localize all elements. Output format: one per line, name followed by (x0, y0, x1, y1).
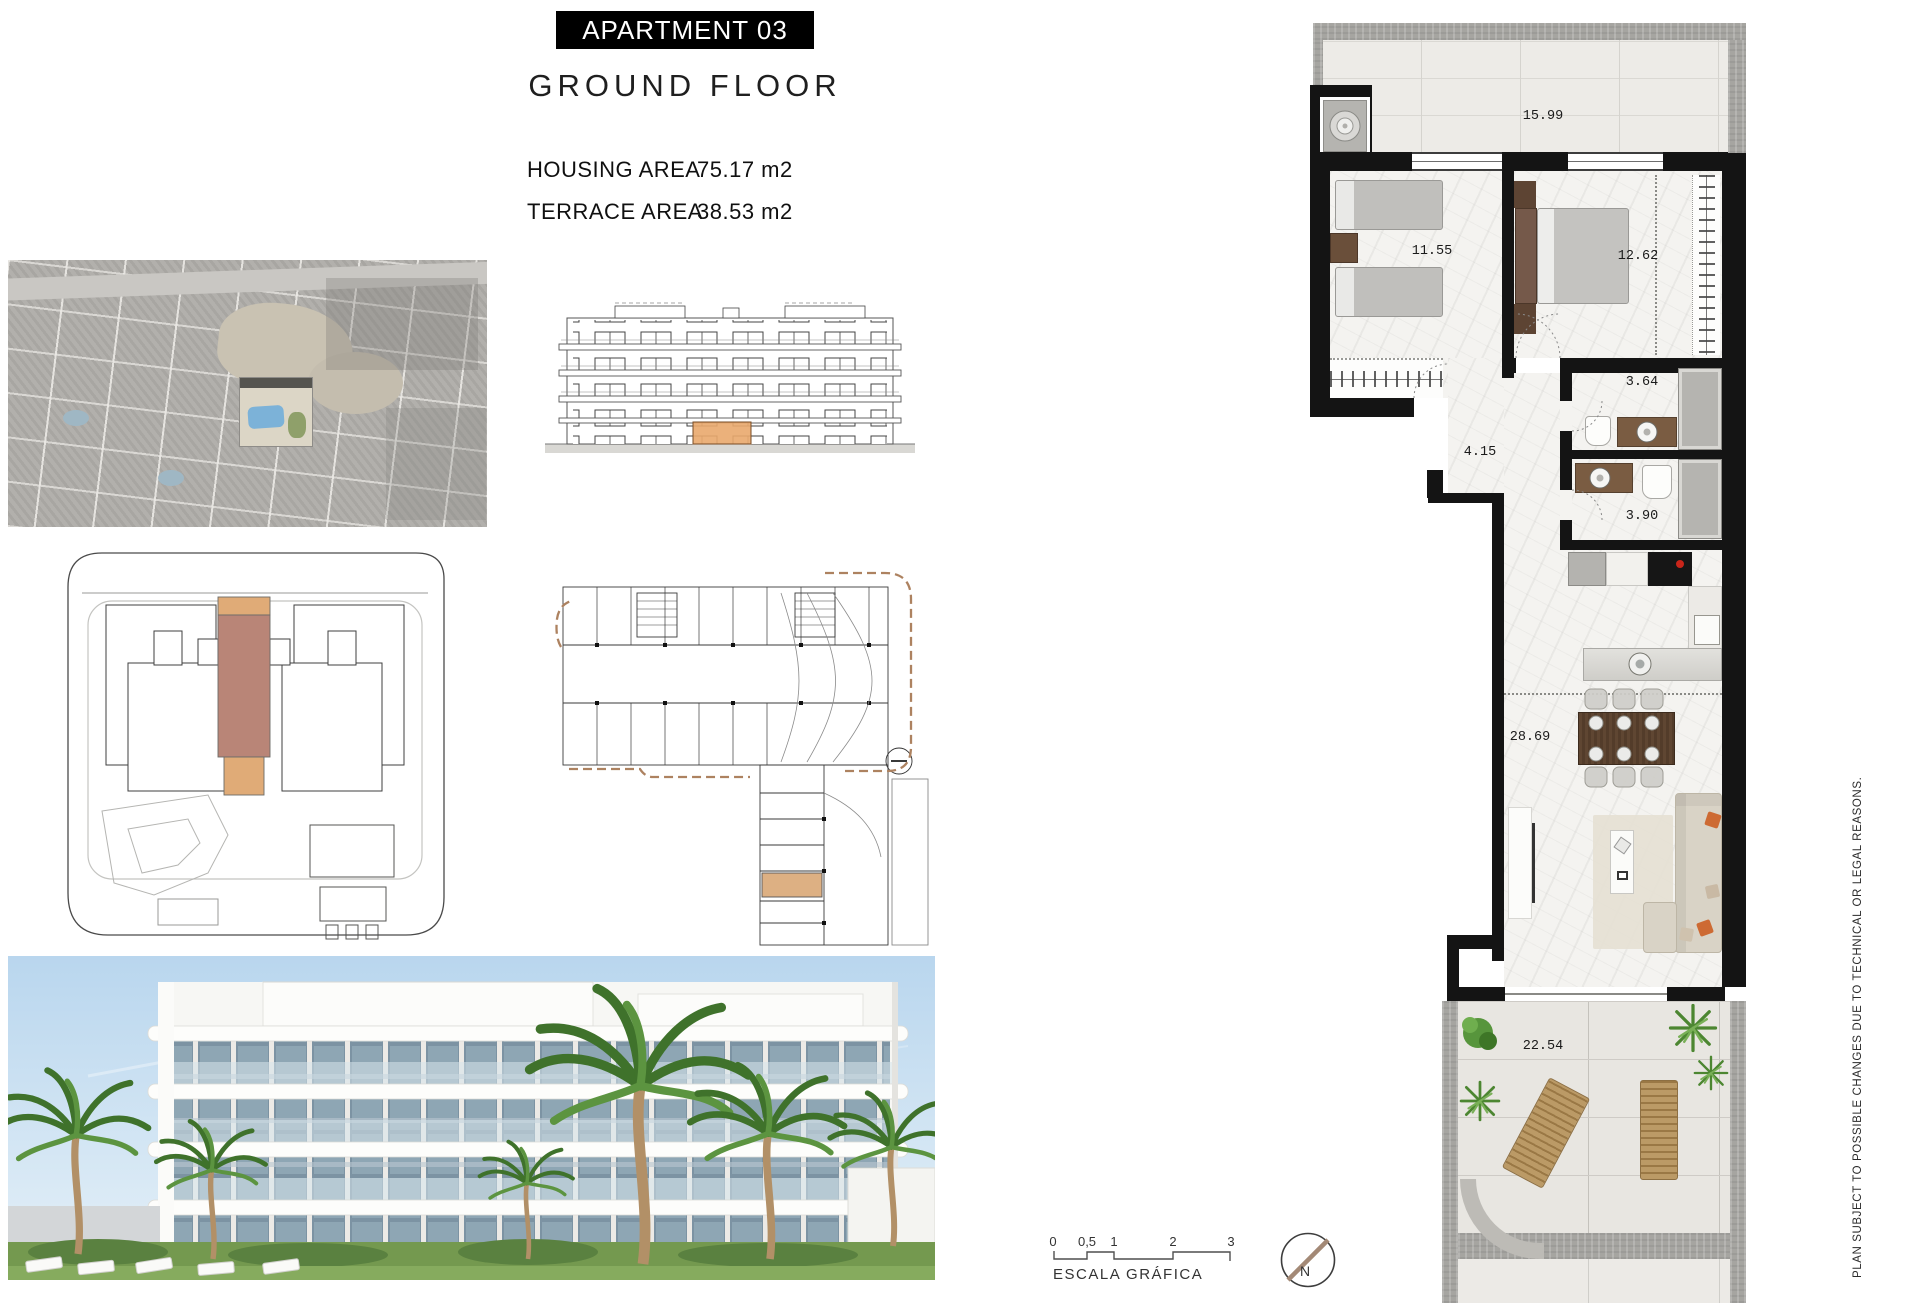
site-plan-drawing (58, 543, 452, 945)
aerial-block-shade (386, 408, 486, 520)
terrace-area-value: 38.53 m2 (697, 199, 793, 225)
housing-area-value: 75.17 m2 (697, 157, 793, 183)
aerial-photo (8, 260, 487, 527)
terrace-area-label: TERRACE AREA (527, 199, 703, 225)
floor-subtitle: GROUND FLOOR (460, 68, 910, 104)
aerial-block-shade (326, 278, 478, 370)
aerial-site-garden (288, 412, 306, 438)
aerial-site-roof (240, 378, 312, 388)
building-render-photo (8, 956, 935, 1280)
highlighted-unit (693, 422, 751, 444)
highlighted-parking-space (762, 873, 822, 897)
room-area-label-bedroom-2: 12.62 (1606, 249, 1670, 264)
room-area-label-hallway: 4.15 (1448, 445, 1512, 460)
legal-disclaimer: PLAN SUBJECT TO POSSIBLE CHANGES DUE TO … (1848, 782, 1868, 1278)
plan-detail-overlay (1310, 23, 1748, 1280)
room-area-label-bedroom-1: 11.55 (1400, 244, 1464, 259)
room-area-label-terrace: 22.54 (1511, 1039, 1575, 1054)
plot-boundary-dashed (557, 573, 912, 777)
aerial-pool-small (158, 470, 184, 486)
aerial-site-pool (247, 405, 284, 429)
room-area-label-upper-terrace: 15.99 (1511, 109, 1575, 124)
floor-plan: 15.99 11.55 12.62 3.64 4.15 3.90 28.69 2… (1310, 23, 1748, 1280)
scale-bar (1053, 1247, 1233, 1263)
terrace-bush (1462, 1017, 1497, 1050)
page-title: APARTMENT 03 (556, 11, 814, 49)
highlighted-unit-stack (218, 597, 270, 795)
scale-caption: ESCALA GRÁFICA (1053, 1266, 1203, 1283)
aerial-pool-small (63, 410, 89, 426)
room-area-label-bathroom-1: 3.64 (1610, 375, 1674, 390)
room-area-label-living: 28.69 (1498, 730, 1562, 745)
room-area-label-bathroom-2: 3.90 (1610, 509, 1674, 524)
housing-area-label: HOUSING AREA (527, 157, 700, 183)
compass-north-label: N (1300, 1263, 1310, 1279)
north-compass: N (1277, 1231, 1339, 1293)
aerial-project-site (240, 378, 312, 446)
elevation-drawing (545, 300, 915, 455)
garage-plan-drawing (545, 557, 935, 952)
